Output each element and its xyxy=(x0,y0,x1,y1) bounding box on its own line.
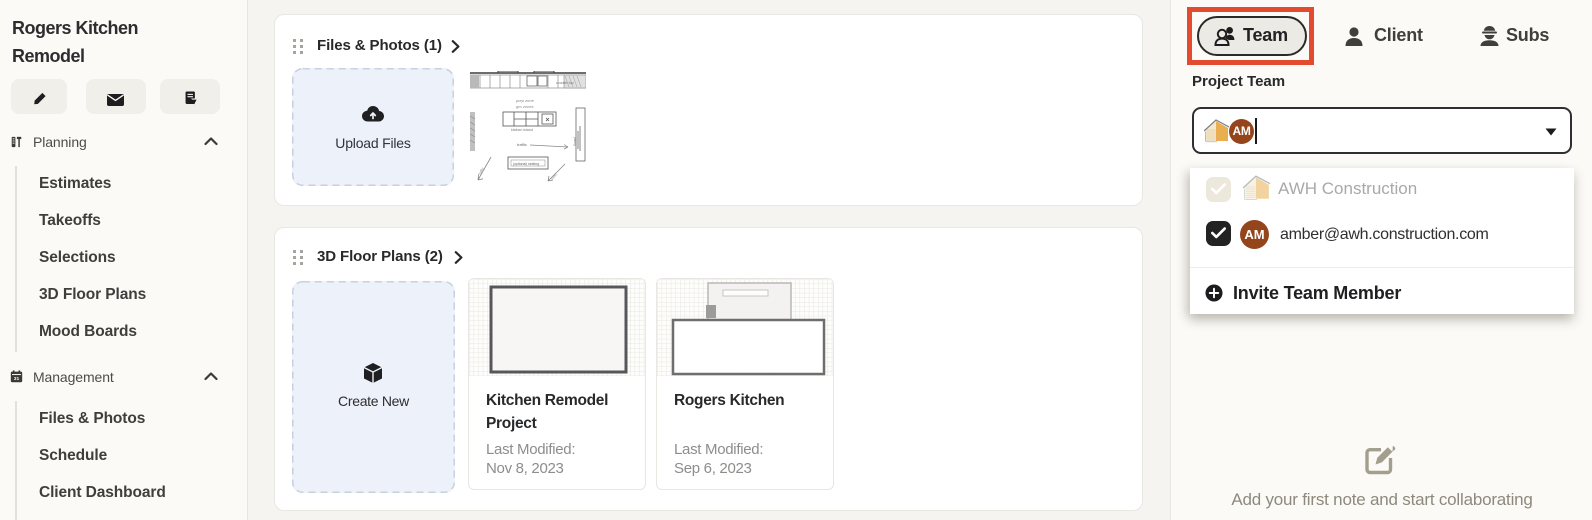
svg-text:traffic: traffic xyxy=(550,172,559,181)
svg-text:kitchen island: kitchen island xyxy=(511,128,533,132)
svg-text:(optional) seating: (optional) seating xyxy=(513,162,539,166)
svg-text:prep zone: prep zone xyxy=(515,98,535,103)
svg-text:pantry: pantry xyxy=(573,137,577,146)
svg-text:traffic: traffic xyxy=(477,166,485,175)
svg-text:31: 31 xyxy=(14,376,20,382)
svg-text:gro zones: gro zones xyxy=(516,104,534,109)
svg-text:counter top: counter top xyxy=(556,81,574,85)
svg-text:traffic: traffic xyxy=(517,142,527,147)
